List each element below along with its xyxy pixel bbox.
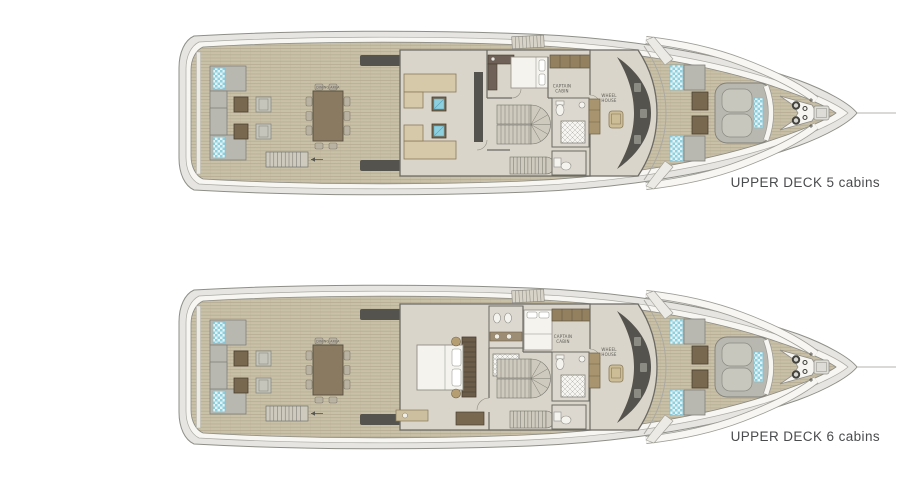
- shower: [561, 121, 585, 143]
- yacht-plan-5-cabins: DINING AREACAPTAINCABINWHEELHOUSE: [179, 31, 896, 195]
- console-panel: [634, 135, 641, 144]
- lower-staircase: [510, 411, 555, 428]
- side-staircase: [512, 35, 545, 49]
- bidet: [505, 313, 512, 323]
- stair-run: [266, 406, 308, 421]
- wheelhouse-cabinet: [589, 99, 600, 134]
- coffee-table: [234, 124, 248, 139]
- bathroom-room: [489, 306, 523, 348]
- saloon-sofa-starboard: [404, 125, 423, 141]
- console-panel: [634, 389, 641, 398]
- nightstand: [452, 337, 461, 346]
- foredeck-table: [692, 370, 708, 388]
- side-staircase: [512, 289, 545, 303]
- yacht-plan-6-cabins: DINING AREACAPTAINCABINWHEELHOUSE: [179, 285, 896, 449]
- sink: [554, 412, 561, 421]
- dining-chair: [329, 397, 337, 403]
- stair-run: [497, 359, 531, 378]
- pillow: [539, 312, 549, 318]
- sunpad-lounger: [722, 114, 752, 137]
- dining-chair: [344, 97, 350, 106]
- stair-run: [266, 152, 308, 167]
- console-panel: [640, 363, 647, 372]
- saloon-sofa-port: [404, 92, 423, 108]
- dining-chair: [306, 366, 312, 375]
- foredeck-table: [692, 92, 708, 110]
- dining-chair: [315, 397, 323, 403]
- sink: [507, 334, 512, 339]
- toilet: [556, 105, 564, 116]
- windlass-winch: [793, 371, 799, 377]
- windlass-winch: [793, 356, 799, 362]
- sunpad-lounger: [722, 368, 752, 391]
- bench-sink: [403, 413, 408, 418]
- console-panel: [634, 83, 641, 92]
- toilet: [556, 359, 564, 370]
- dining-chair: [315, 143, 323, 149]
- pantry-counter: [488, 64, 497, 90]
- pillow: [452, 369, 461, 386]
- sink: [495, 334, 500, 339]
- sink: [554, 158, 561, 167]
- sofa-cushions: [213, 137, 225, 158]
- wheelhouse-label: HOUSE: [601, 352, 616, 357]
- dining-chair: [344, 366, 350, 375]
- dining-area-label: DINING AREA: [316, 340, 340, 344]
- foredeck-bench: [684, 65, 705, 90]
- deck-caption-6-cabins: UPPER DECK 6 cabins: [580, 429, 880, 444]
- sunpad: [715, 337, 771, 397]
- bathroom: [552, 98, 589, 147]
- toilet: [494, 313, 501, 323]
- sunpad-cushion: [754, 98, 763, 128]
- dining-table: [313, 345, 343, 395]
- transom-step: [197, 306, 201, 428]
- aft-sofa-starboard: [210, 108, 227, 135]
- cabinet: [552, 309, 590, 321]
- sunpad-lounger: [722, 343, 752, 366]
- foredeck-bench: [684, 136, 705, 161]
- sunpad-lounger: [722, 89, 752, 112]
- pillow: [527, 312, 537, 318]
- dining-chair: [306, 351, 312, 360]
- captain-cabin-label: CABIN: [556, 339, 569, 344]
- shower: [561, 375, 585, 397]
- dining-chair: [344, 112, 350, 121]
- wheelhouse-cabinet: [589, 353, 600, 388]
- pillow: [452, 349, 461, 366]
- foredeck-bench: [684, 390, 705, 415]
- dining-chair: [344, 126, 350, 135]
- pantry-sink: [491, 57, 495, 61]
- foredeck-bench: [684, 319, 705, 344]
- foredeck-cushion: [670, 136, 683, 161]
- windlass-winch: [793, 102, 799, 108]
- sofa-cushions: [213, 391, 225, 412]
- windlass-winch: [793, 117, 799, 123]
- tv-cabinet: [456, 412, 484, 425]
- coffee-table: [234, 97, 248, 112]
- dining-chair: [306, 380, 312, 389]
- sink: [579, 356, 585, 362]
- nightstand: [452, 389, 461, 398]
- sofa-cushions: [213, 322, 225, 343]
- deck-plans-page: DINING AREACAPTAINCABINWHEELHOUSEDINING …: [0, 0, 900, 500]
- console-panel: [634, 337, 641, 346]
- helm-chair: [609, 365, 623, 382]
- foredeck-cushion: [670, 390, 683, 415]
- dining-chair: [306, 112, 312, 121]
- sink: [579, 102, 585, 108]
- toilet: [561, 416, 571, 424]
- saloon-sofa-starboard: [404, 141, 456, 159]
- dining-area-label: DINING AREA: [316, 86, 340, 90]
- helm-chair: [609, 111, 623, 128]
- foredeck-table: [692, 116, 708, 134]
- wheelhouse-label: HOUSE: [601, 98, 616, 103]
- captain-cabin-label: CABIN: [555, 89, 568, 94]
- sofa-cushions: [213, 68, 225, 89]
- console-panel: [640, 109, 647, 118]
- coffee-table: [234, 378, 248, 393]
- dining-chair: [306, 97, 312, 106]
- bathroom: [552, 352, 589, 401]
- dining-chair: [344, 380, 350, 389]
- pillow: [539, 60, 545, 71]
- coffee-table: [234, 351, 248, 366]
- stair-run: [512, 289, 545, 303]
- stair-run: [497, 379, 531, 398]
- master-bench: [396, 410, 428, 421]
- sunpad: [715, 83, 771, 143]
- day-head: [552, 405, 586, 429]
- toilet: [561, 162, 571, 170]
- dining-chair: [306, 126, 312, 135]
- lower-staircase: [510, 157, 555, 174]
- stair-run: [512, 35, 545, 49]
- day-head: [552, 151, 586, 175]
- sunpad-cushion: [754, 352, 763, 382]
- tv-console: [474, 72, 483, 142]
- deck-caption-5-cabins: UPPER DECK 5 cabins: [580, 175, 880, 190]
- foredeck-cushion: [670, 319, 683, 344]
- foredeck-table: [692, 346, 708, 364]
- pillow: [539, 74, 545, 85]
- dining-area: DINING AREA: [306, 338, 350, 403]
- deck-plan-canvas: DINING AREACAPTAINCABINWHEELHOUSEDINING …: [0, 0, 900, 500]
- dining-table: [313, 91, 343, 141]
- transom-step: [197, 52, 201, 174]
- stair-run: [497, 125, 531, 144]
- aft-sofa-starboard: [210, 362, 227, 389]
- stair-run: [497, 105, 531, 124]
- dining-chair: [344, 351, 350, 360]
- foredeck-cushion: [670, 65, 683, 90]
- saloon-sofa-port: [404, 74, 456, 92]
- dining-area: DINING AREA: [306, 84, 350, 149]
- dining-chair: [329, 143, 337, 149]
